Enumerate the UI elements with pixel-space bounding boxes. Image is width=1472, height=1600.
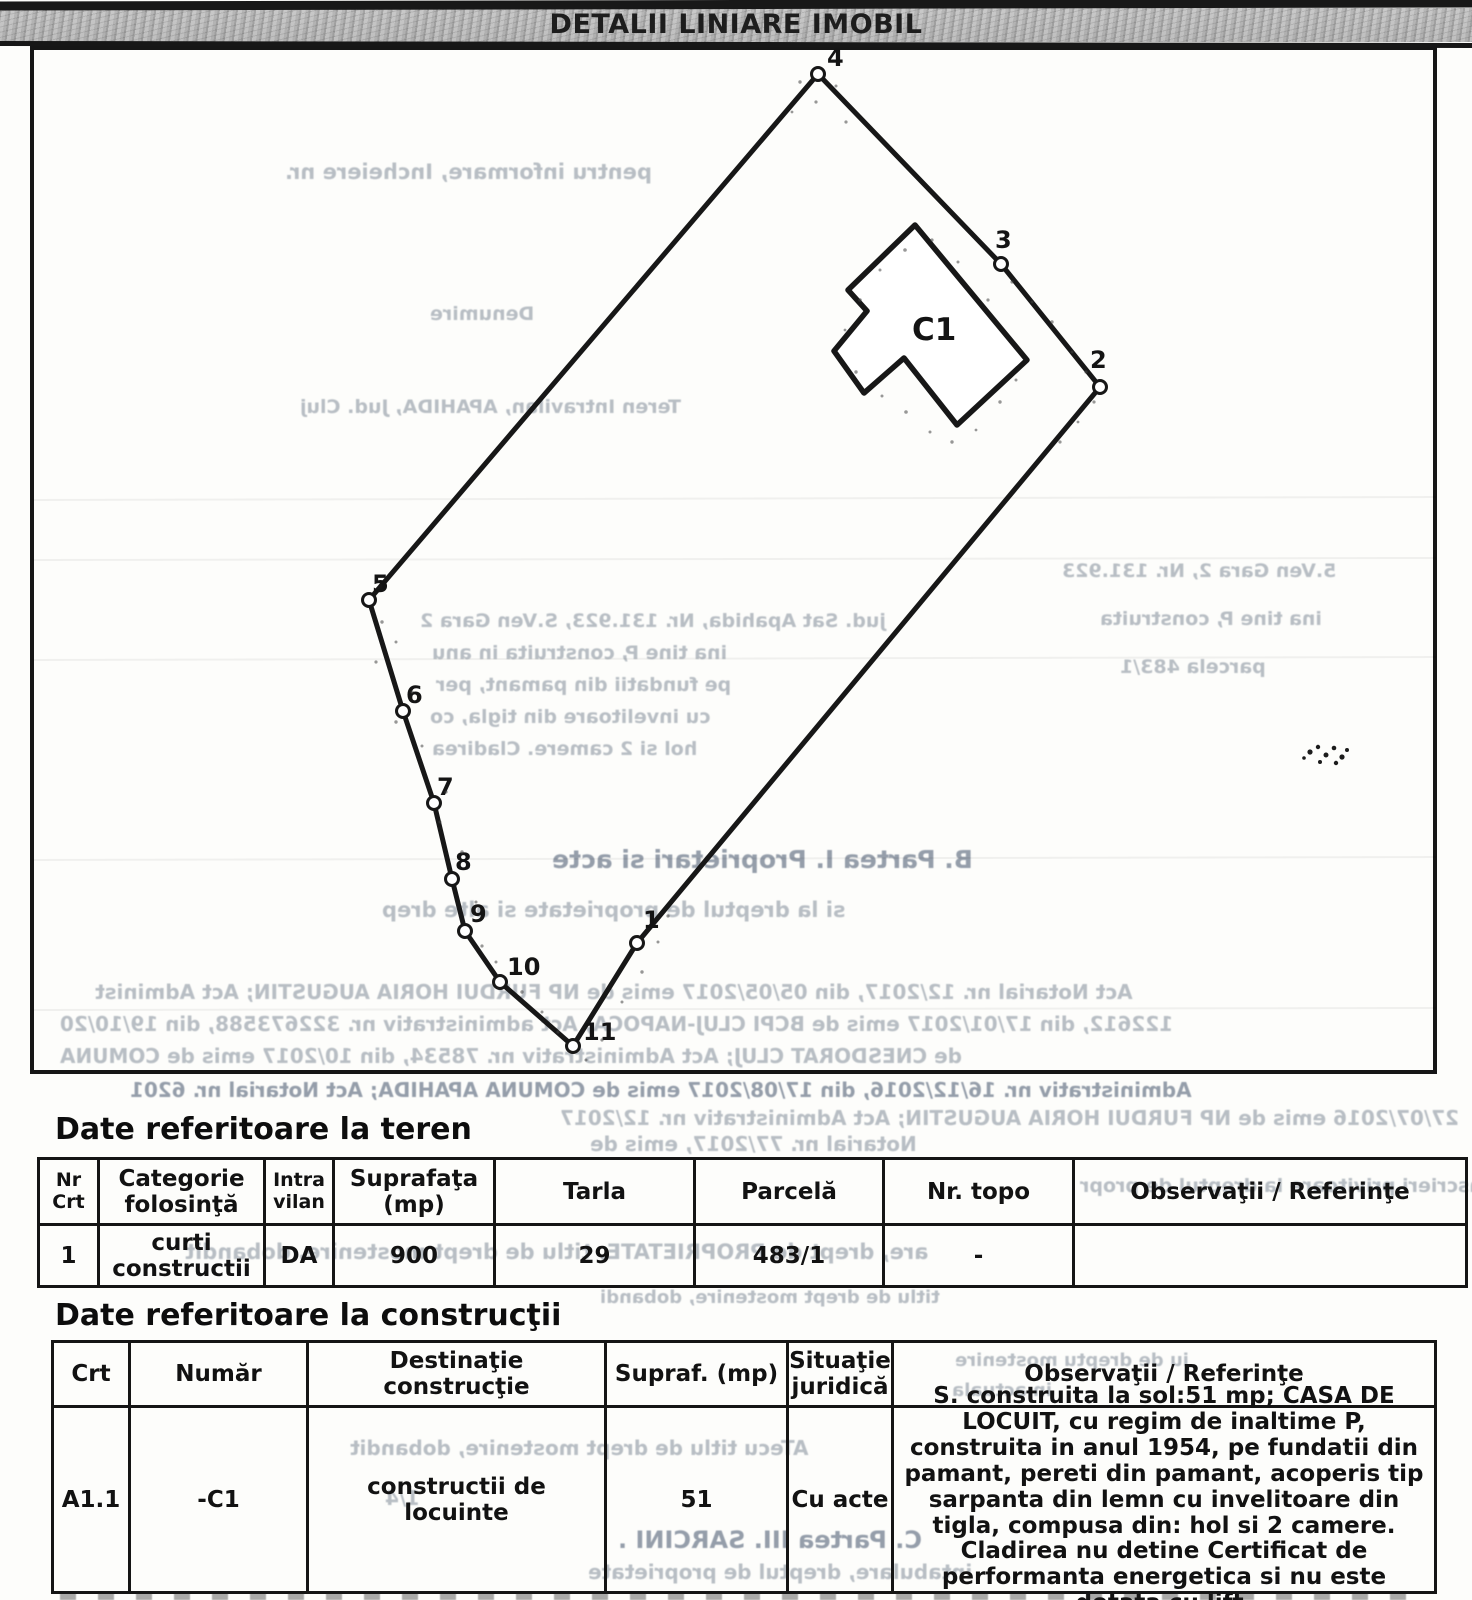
th-situatie-juridica: Situaţie juridică — [789, 1343, 894, 1408]
scan-noise-strip — [60, 1593, 1420, 1600]
cell-destinatie: constructii de locuinte — [309, 1408, 607, 1591]
th-tarla: Tarla — [496, 1160, 696, 1226]
title-band: DETALII LINIARE IMOBIL — [0, 8, 1472, 42]
cell-nr-crt: 1 — [40, 1226, 100, 1285]
cell-observatii — [1075, 1226, 1465, 1285]
scanned-document-page: pentru informare, Incheiere nr. Denumire… — [0, 0, 1472, 1600]
construction-table: Crt Număr Destinaţie construcţie Supraf.… — [51, 1340, 1437, 1594]
th-crt: Crt — [54, 1343, 131, 1408]
ghost-text: Notarial nr. 77/2017, emis de — [590, 1132, 917, 1156]
cell-observatii-constructii: S. construita la sol:51 mp; CASA DE LOCU… — [894, 1408, 1434, 1591]
th-intra-vilan: Intra vilan — [266, 1160, 335, 1226]
ghost-text: 27/07/2016 emis de NP FURDUI HORIA AUGUS… — [560, 1106, 1459, 1130]
th-observatii: Observaţii / Referinţe — [1075, 1160, 1465, 1226]
ghost-text: titlu de drept mostenire, dobandi — [600, 1287, 940, 1308]
construction-section-heading: Date referitoare la construcţii — [55, 1298, 561, 1333]
cell-parcela: 483/1 — [696, 1226, 885, 1285]
th-nr-topo: Nr. topo — [885, 1160, 1075, 1226]
land-table: Nr Crt Categorie folosinţă Intra vilan S… — [37, 1157, 1468, 1288]
cell-categorie: curti constructii — [100, 1226, 266, 1285]
cell-supraf: 51 — [607, 1408, 789, 1591]
th-supraf: Supraf. (mp) — [607, 1343, 789, 1408]
cell-numar: -C1 — [131, 1408, 309, 1591]
cell-intra-vilan: DA — [266, 1226, 335, 1285]
th-categorie-folosinta: Categorie folosinţă — [100, 1160, 266, 1226]
th-destinatie: Destinaţie construcţie — [309, 1343, 607, 1408]
cell-suprafata: 900 — [335, 1226, 496, 1285]
ghost-text: Administrativ nr. 16/12/2016, din 17/08/… — [130, 1078, 1192, 1102]
cell-tarla: 29 — [496, 1226, 696, 1285]
cell-crt: A1.1 — [54, 1408, 131, 1591]
th-nr-crt: Nr Crt — [40, 1160, 100, 1226]
cell-situatie-juridica: Cu acte — [789, 1408, 894, 1591]
cell-nr-topo: - — [885, 1226, 1075, 1285]
page-title: DETALII LINIARE IMOBIL — [0, 8, 1472, 42]
th-numar: Număr — [131, 1343, 309, 1408]
parcel-diagram-frame — [30, 46, 1437, 1074]
land-section-heading: Date referitoare la teren — [55, 1112, 472, 1147]
th-parcela: Parcelă — [696, 1160, 885, 1226]
th-suprafata: Suprafaţa (mp) — [335, 1160, 496, 1226]
